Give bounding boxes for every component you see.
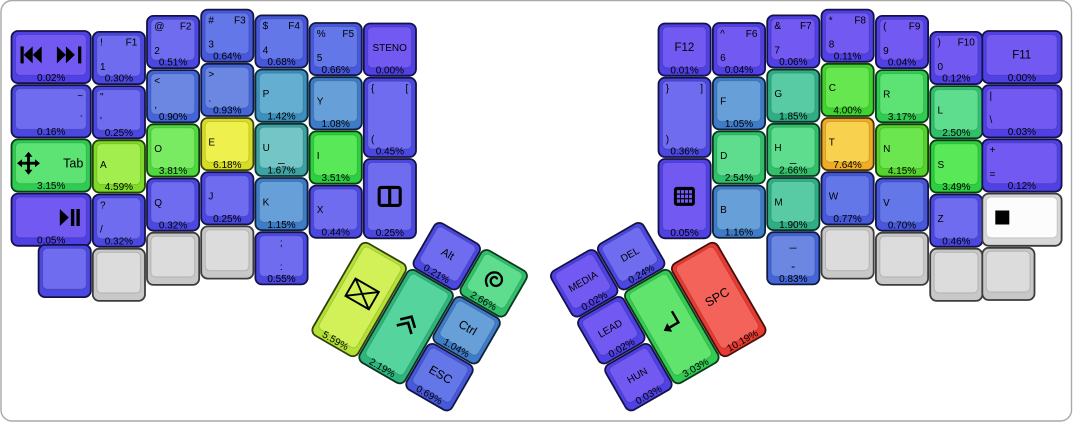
svg-text:F1: F1 [126,38,138,49]
svg-text:F4: F4 [288,21,300,32]
svg-text:): ) [938,38,941,49]
svg-text:0.25%: 0.25% [376,228,404,239]
svg-text:;: ; [280,238,283,249]
svg-text:F9: F9 [909,22,921,33]
svg-text:4.00%: 4.00% [833,106,861,117]
svg-text:3.15%: 3.15% [37,181,65,192]
svg-text:1.67%: 1.67% [267,166,295,177]
svg-text:N: N [883,144,890,155]
svg-text:^: ^ [720,29,725,40]
svg-text:0.04%: 0.04% [888,58,916,69]
svg-text:Tab: Tab [63,157,83,171]
svg-text:0.12%: 0.12% [942,74,970,85]
svg-text:\: \ [990,115,993,126]
svg-text:1.16%: 1.16% [725,227,753,238]
svg-text:K: K [263,198,270,209]
svg-text:+: + [990,145,996,156]
svg-text:0.64%: 0.64% [213,51,241,62]
svg-text:W: W [829,192,839,203]
svg-text:_: _ [789,153,797,165]
svg-text:#: # [208,15,214,26]
svg-text:7: 7 [774,45,780,56]
svg-text:2.50%: 2.50% [942,128,970,139]
svg-text:2.66%: 2.66% [779,166,807,177]
svg-text:4.59%: 4.59% [105,182,133,193]
svg-text:%: % [317,29,326,40]
svg-text:L: L [938,106,944,117]
svg-text:`: ` [80,114,83,126]
svg-text:<: < [154,76,160,87]
svg-text:I: I [317,151,320,162]
svg-text:0.16%: 0.16% [37,127,65,138]
svg-text:!: ! [100,38,103,49]
svg-text:0.45%: 0.45% [376,147,404,158]
svg-text:F3: F3 [234,15,246,26]
svg-text:1: 1 [100,62,106,73]
svg-text:0.12%: 0.12% [1008,181,1036,192]
svg-text:0.01%: 0.01% [670,65,698,76]
svg-text:3: 3 [208,40,214,51]
svg-text:P: P [263,89,270,100]
svg-text:F12: F12 [674,42,694,54]
svg-text:0.46%: 0.46% [942,236,970,247]
svg-text:A: A [100,160,107,171]
svg-text:0.32%: 0.32% [159,220,187,231]
svg-text:&: & [774,21,781,32]
svg-text:3.49%: 3.49% [942,182,970,193]
svg-text:F8: F8 [854,15,866,26]
svg-text:F: F [720,97,726,108]
svg-text:F10: F10 [958,38,976,49]
svg-text:M: M [774,198,782,209]
svg-text:0.02%: 0.02% [37,73,65,84]
svg-text:_: _ [277,153,285,165]
svg-text:R: R [883,90,890,101]
svg-text:1.08%: 1.08% [322,119,350,130]
svg-text:~: ~ [77,91,83,102]
svg-text:5: 5 [317,53,323,64]
svg-text:0.00%: 0.00% [1008,73,1036,84]
svg-text:=: = [990,169,996,180]
svg-text:X: X [317,205,324,216]
svg-text:6: 6 [720,53,726,64]
svg-text:>: > [208,70,214,81]
svg-text:*: * [829,15,833,26]
svg-text:0.11%: 0.11% [834,51,862,62]
svg-text:1.90%: 1.90% [779,220,807,231]
svg-text:H: H [774,143,781,154]
svg-text:Q: Q [154,198,162,209]
svg-text:0.77%: 0.77% [833,214,861,225]
svg-text:]: ] [700,84,703,95]
svg-text:1.15%: 1.15% [267,220,295,231]
svg-text:0.90%: 0.90% [159,112,187,123]
svg-text:$: $ [263,21,269,32]
svg-text:S: S [938,160,945,171]
svg-text:0.32%: 0.32% [105,236,133,247]
svg-text:0.06%: 0.06% [779,57,807,68]
svg-text:0.36%: 0.36% [670,147,698,158]
svg-text:1.05%: 1.05% [725,119,753,130]
svg-text:[: [ [406,84,409,95]
svg-text:0.44%: 0.44% [322,227,350,238]
svg-text:0.05%: 0.05% [670,228,698,239]
svg-text:3.81%: 3.81% [159,166,187,177]
svg-text:F2: F2 [180,22,192,33]
svg-text:4.15%: 4.15% [888,166,916,177]
svg-text:F6: F6 [746,29,758,40]
svg-text:): ) [666,135,669,146]
svg-text:0.03%: 0.03% [1008,127,1036,138]
svg-text:F11: F11 [1012,50,1031,62]
svg-text:D: D [720,151,727,162]
svg-text:": " [100,92,104,103]
svg-text:0.25%: 0.25% [105,128,133,139]
svg-text:3.51%: 3.51% [322,173,350,184]
svg-text:O: O [154,144,162,155]
svg-text:0.04%: 0.04% [725,65,753,76]
svg-text:.: . [208,94,211,105]
svg-text:?: ? [100,200,106,211]
svg-text:,: , [154,100,157,111]
svg-text:6.18%: 6.18% [213,160,241,171]
svg-text:G: G [774,89,782,100]
svg-text:4: 4 [263,45,269,56]
svg-text:0.66%: 0.66% [322,65,350,76]
svg-text:E: E [208,137,215,148]
svg-text:2: 2 [154,46,160,57]
svg-text:B: B [720,205,727,216]
svg-text:/: / [100,224,103,235]
svg-text:_: _ [789,235,797,249]
svg-text:1.42%: 1.42% [267,111,295,122]
svg-text:-: - [791,259,795,273]
svg-text:J: J [208,192,213,203]
svg-text:STENO: STENO [372,43,407,54]
svg-text:8: 8 [829,40,835,51]
svg-text:': ' [100,116,102,127]
svg-text:0: 0 [938,62,944,73]
svg-text:U: U [263,143,270,154]
svg-text:F7: F7 [800,21,812,32]
svg-text:0.30%: 0.30% [105,74,133,85]
svg-text:0.93%: 0.93% [213,106,241,117]
svg-text:0.25%: 0.25% [213,214,241,225]
svg-text:0.68%: 0.68% [267,57,295,68]
svg-text:F5: F5 [342,29,354,40]
svg-text:0.83%: 0.83% [779,274,807,285]
svg-text:7.64%: 7.64% [833,160,861,171]
svg-text:3.17%: 3.17% [888,112,916,123]
svg-text:0.55%: 0.55% [267,274,295,285]
svg-text:0.00%: 0.00% [376,65,404,76]
svg-text::: : [280,262,283,273]
svg-text:1.85%: 1.85% [779,111,807,122]
svg-text:V: V [883,198,890,209]
svg-text:9: 9 [883,46,889,57]
svg-text:0.51%: 0.51% [159,58,187,69]
svg-text:C: C [829,83,836,94]
svg-text:Y: Y [317,97,324,108]
svg-text:0.70%: 0.70% [888,220,916,231]
svg-text:|: | [990,91,993,102]
svg-text:@: @ [154,22,164,33]
svg-text:T: T [829,137,835,148]
svg-text:Z: Z [938,214,944,225]
svg-text:2.54%: 2.54% [725,173,753,184]
